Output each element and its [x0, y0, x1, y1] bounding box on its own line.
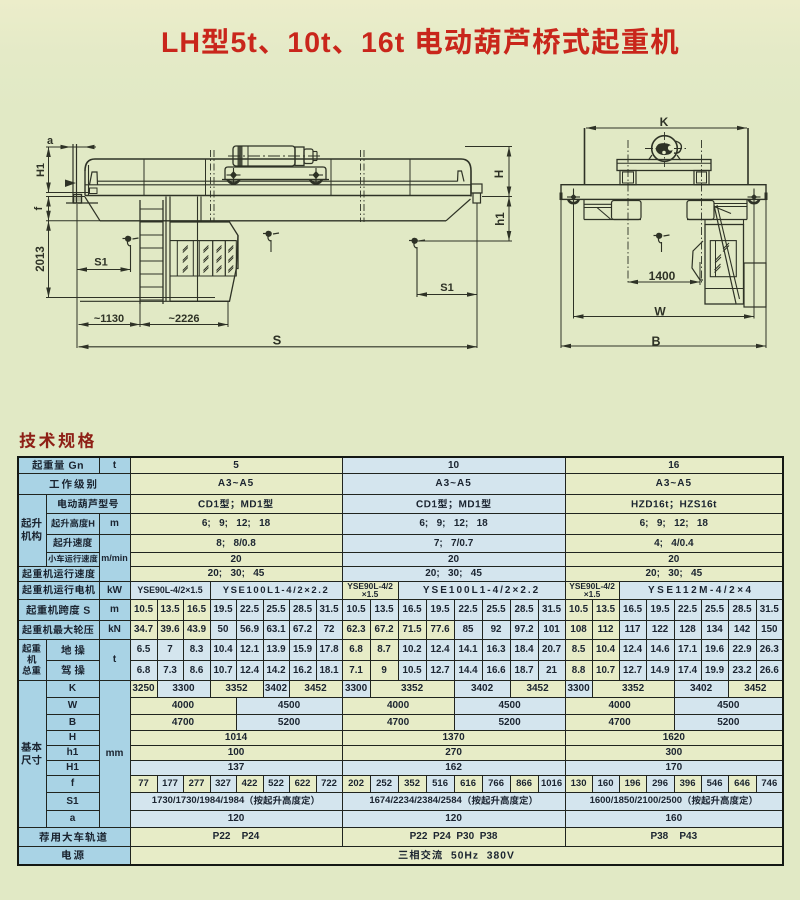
svg-text:W: W	[654, 305, 666, 319]
svg-text:S1: S1	[94, 257, 107, 269]
svg-text:S: S	[273, 333, 282, 348]
svg-text:B: B	[651, 335, 660, 349]
svg-text:2013: 2013	[35, 246, 47, 272]
svg-text:S1: S1	[440, 282, 453, 294]
svg-text:~2226: ~2226	[169, 313, 200, 325]
svg-text:f: f	[33, 206, 45, 210]
svg-text:~1130: ~1130	[94, 313, 124, 325]
svg-text:H: H	[494, 170, 506, 178]
svg-text:h1: h1	[495, 212, 507, 226]
svg-text:1400: 1400	[649, 269, 676, 283]
svg-text:K: K	[660, 115, 669, 129]
svg-text:a: a	[47, 135, 54, 147]
svg-text:H1: H1	[35, 163, 47, 177]
